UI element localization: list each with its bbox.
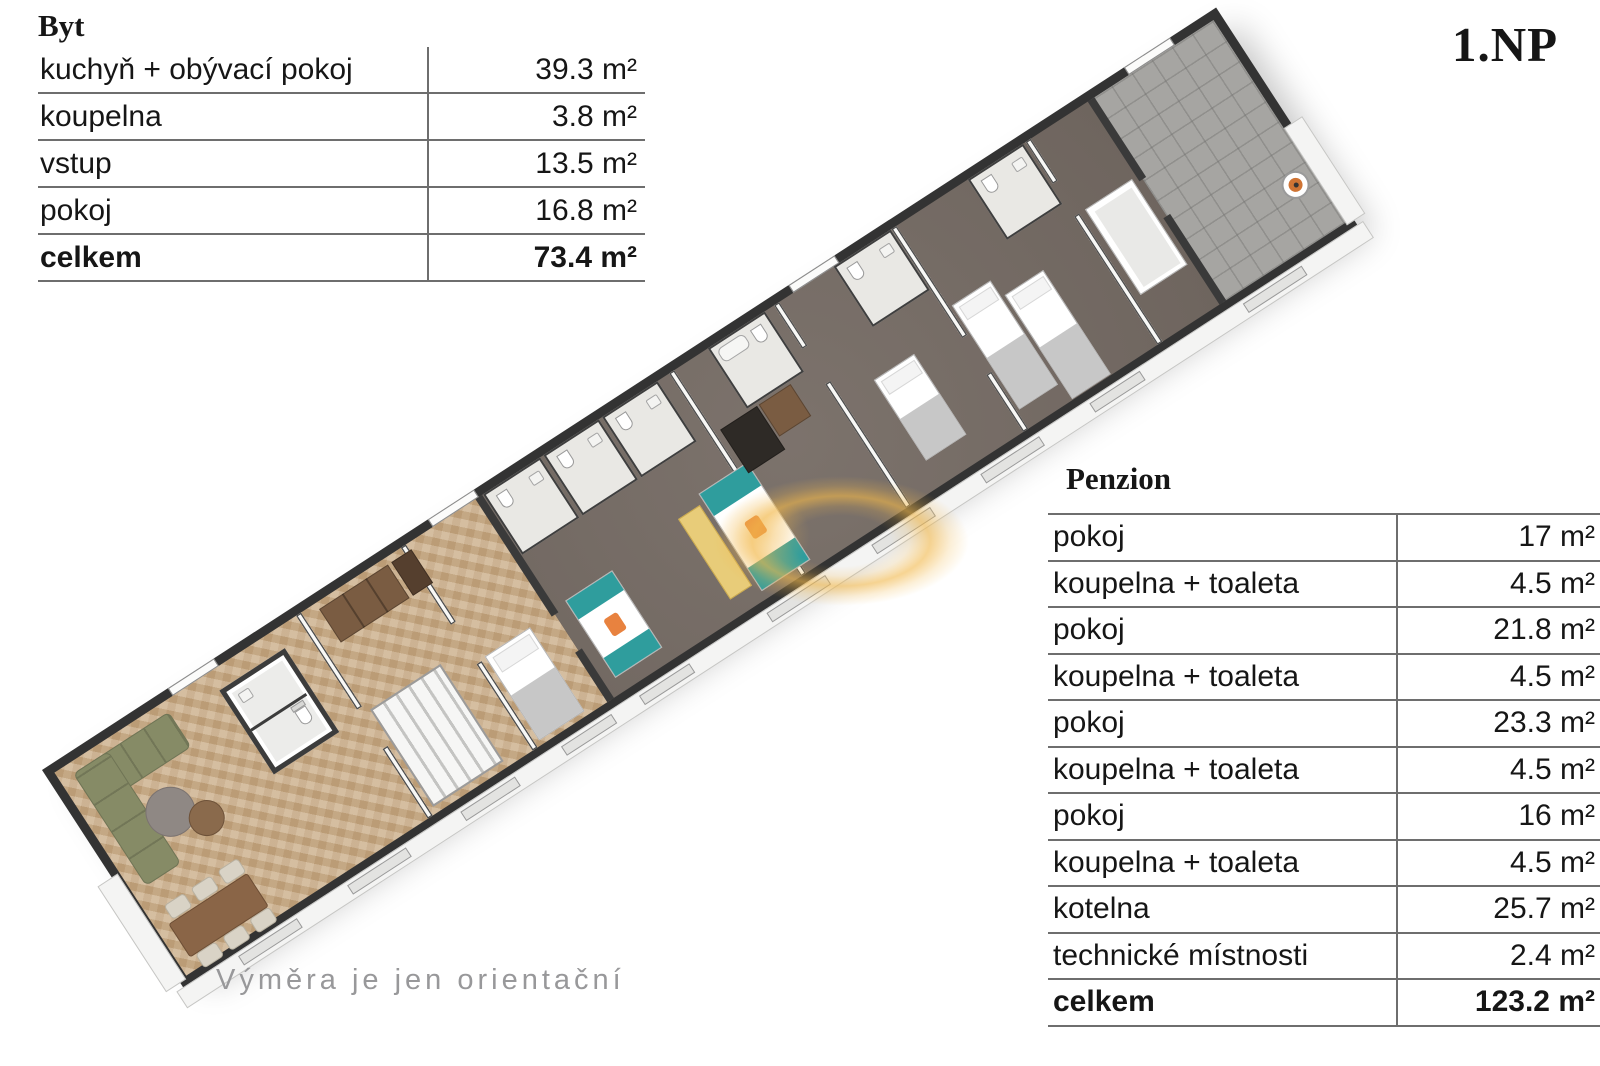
bathtub-icon: [716, 333, 752, 364]
penzion-table-title: Penzion: [1048, 443, 1600, 513]
penzion-table-rows: pokoj17 m²koupelna + toaleta4.5 m²pokoj2…: [1048, 513, 1600, 1027]
table-row: koupelna + toaleta4.5 m²: [1048, 562, 1600, 609]
room-label: celkem: [1048, 987, 1396, 1017]
table-row: celkem123.2 m²: [1048, 980, 1600, 1027]
table-row: pokoj16 m²: [1048, 794, 1600, 841]
byt-table: Byt kuchyň + obývací pokoj39.3 m²koupeln…: [38, 4, 645, 282]
room-area: 4.5 m²: [1396, 748, 1600, 793]
byt-table-rows: kuchyň + obývací pokoj39.3 m²koupelna3.8…: [38, 47, 645, 282]
room-label: vstup: [38, 149, 427, 179]
room-label: kotelna: [1048, 894, 1396, 924]
table-row: pokoj17 m²: [1048, 515, 1600, 562]
room-label: koupelna + toaleta: [1048, 848, 1396, 878]
table-row: pokoj23.3 m²: [1048, 701, 1600, 748]
room-area: 2.4 m²: [1396, 934, 1600, 979]
room-label: koupelna: [38, 102, 427, 132]
penzion-table: Penzion pokoj17 m²koupelna + toaleta4.5 …: [1048, 443, 1600, 1027]
room-area: 17 m²: [1396, 515, 1600, 560]
table-row: vstup13.5 m²: [38, 141, 645, 188]
room-label: pokoj: [1048, 522, 1396, 552]
floorplan-page: { "floor_label": "1.NP", "disclaimer": "…: [0, 0, 1600, 1066]
toilet-icon: [846, 261, 866, 282]
sink-icon: [237, 687, 254, 703]
room-area: 16.8 m²: [427, 188, 645, 233]
room-label: pokoj: [38, 196, 427, 226]
room-area: 3.8 m²: [427, 94, 645, 139]
sink-icon: [1011, 156, 1028, 172]
room-label: koupelna + toaleta: [1048, 755, 1396, 785]
room-area: 25.7 m²: [1396, 887, 1600, 932]
room-area: 4.5 m²: [1396, 841, 1600, 886]
table-row: koupelna + toaleta4.5 m²: [1048, 655, 1600, 702]
room-label: technické místnosti: [1048, 941, 1396, 971]
table-row: koupelna + toaleta4.5 m²: [1048, 841, 1600, 888]
disclaimer-text: Výměra je jen orientační: [216, 964, 625, 997]
sink-icon: [528, 470, 545, 486]
room-area: 123.2 m²: [1396, 980, 1600, 1025]
room-area: 13.5 m²: [427, 141, 645, 186]
room-area: 23.3 m²: [1396, 701, 1600, 746]
toilet-icon: [750, 323, 770, 344]
table-row: celkem73.4 m²: [38, 235, 645, 282]
room-label: pokoj: [1048, 708, 1396, 738]
sink-icon: [878, 242, 895, 258]
sink-icon: [587, 432, 604, 448]
sink-icon: [645, 394, 662, 410]
room-area: 4.5 m²: [1396, 562, 1600, 607]
room-label: pokoj: [1048, 801, 1396, 831]
room-label: koupelna + toaleta: [1048, 662, 1396, 692]
table-row: technické místnosti2.4 m²: [1048, 934, 1600, 981]
toilet-icon: [556, 449, 576, 470]
table-row: koupelna3.8 m²: [38, 94, 645, 141]
byt-table-title: Byt: [38, 4, 645, 47]
orange-pillow: [744, 514, 768, 539]
floor-label: 1.NP: [1452, 16, 1558, 73]
room-label: koupelna + toaleta: [1048, 569, 1396, 599]
room-area: 4.5 m²: [1396, 655, 1600, 700]
room-label: kuchyň + obývací pokoj: [38, 55, 427, 85]
room-area: 39.3 m²: [427, 47, 645, 92]
room-label: celkem: [38, 243, 427, 273]
toilet-icon: [981, 174, 1001, 195]
table-row: pokoj21.8 m²: [1048, 608, 1600, 655]
table-row: kuchyň + obývací pokoj39.3 m²: [38, 47, 645, 94]
room-area: 16 m²: [1396, 794, 1600, 839]
room-area: 21.8 m²: [1396, 608, 1600, 653]
table-row: pokoj16.8 m²: [38, 188, 645, 235]
orange-pillow: [603, 612, 627, 637]
room-label: pokoj: [1048, 615, 1396, 645]
table-row: kotelna25.7 m²: [1048, 887, 1600, 934]
room-area: 73.4 m²: [427, 235, 645, 280]
table-row: koupelna + toaleta4.5 m²: [1048, 748, 1600, 795]
toilet-icon: [496, 489, 516, 510]
toilet-icon: [615, 411, 635, 432]
